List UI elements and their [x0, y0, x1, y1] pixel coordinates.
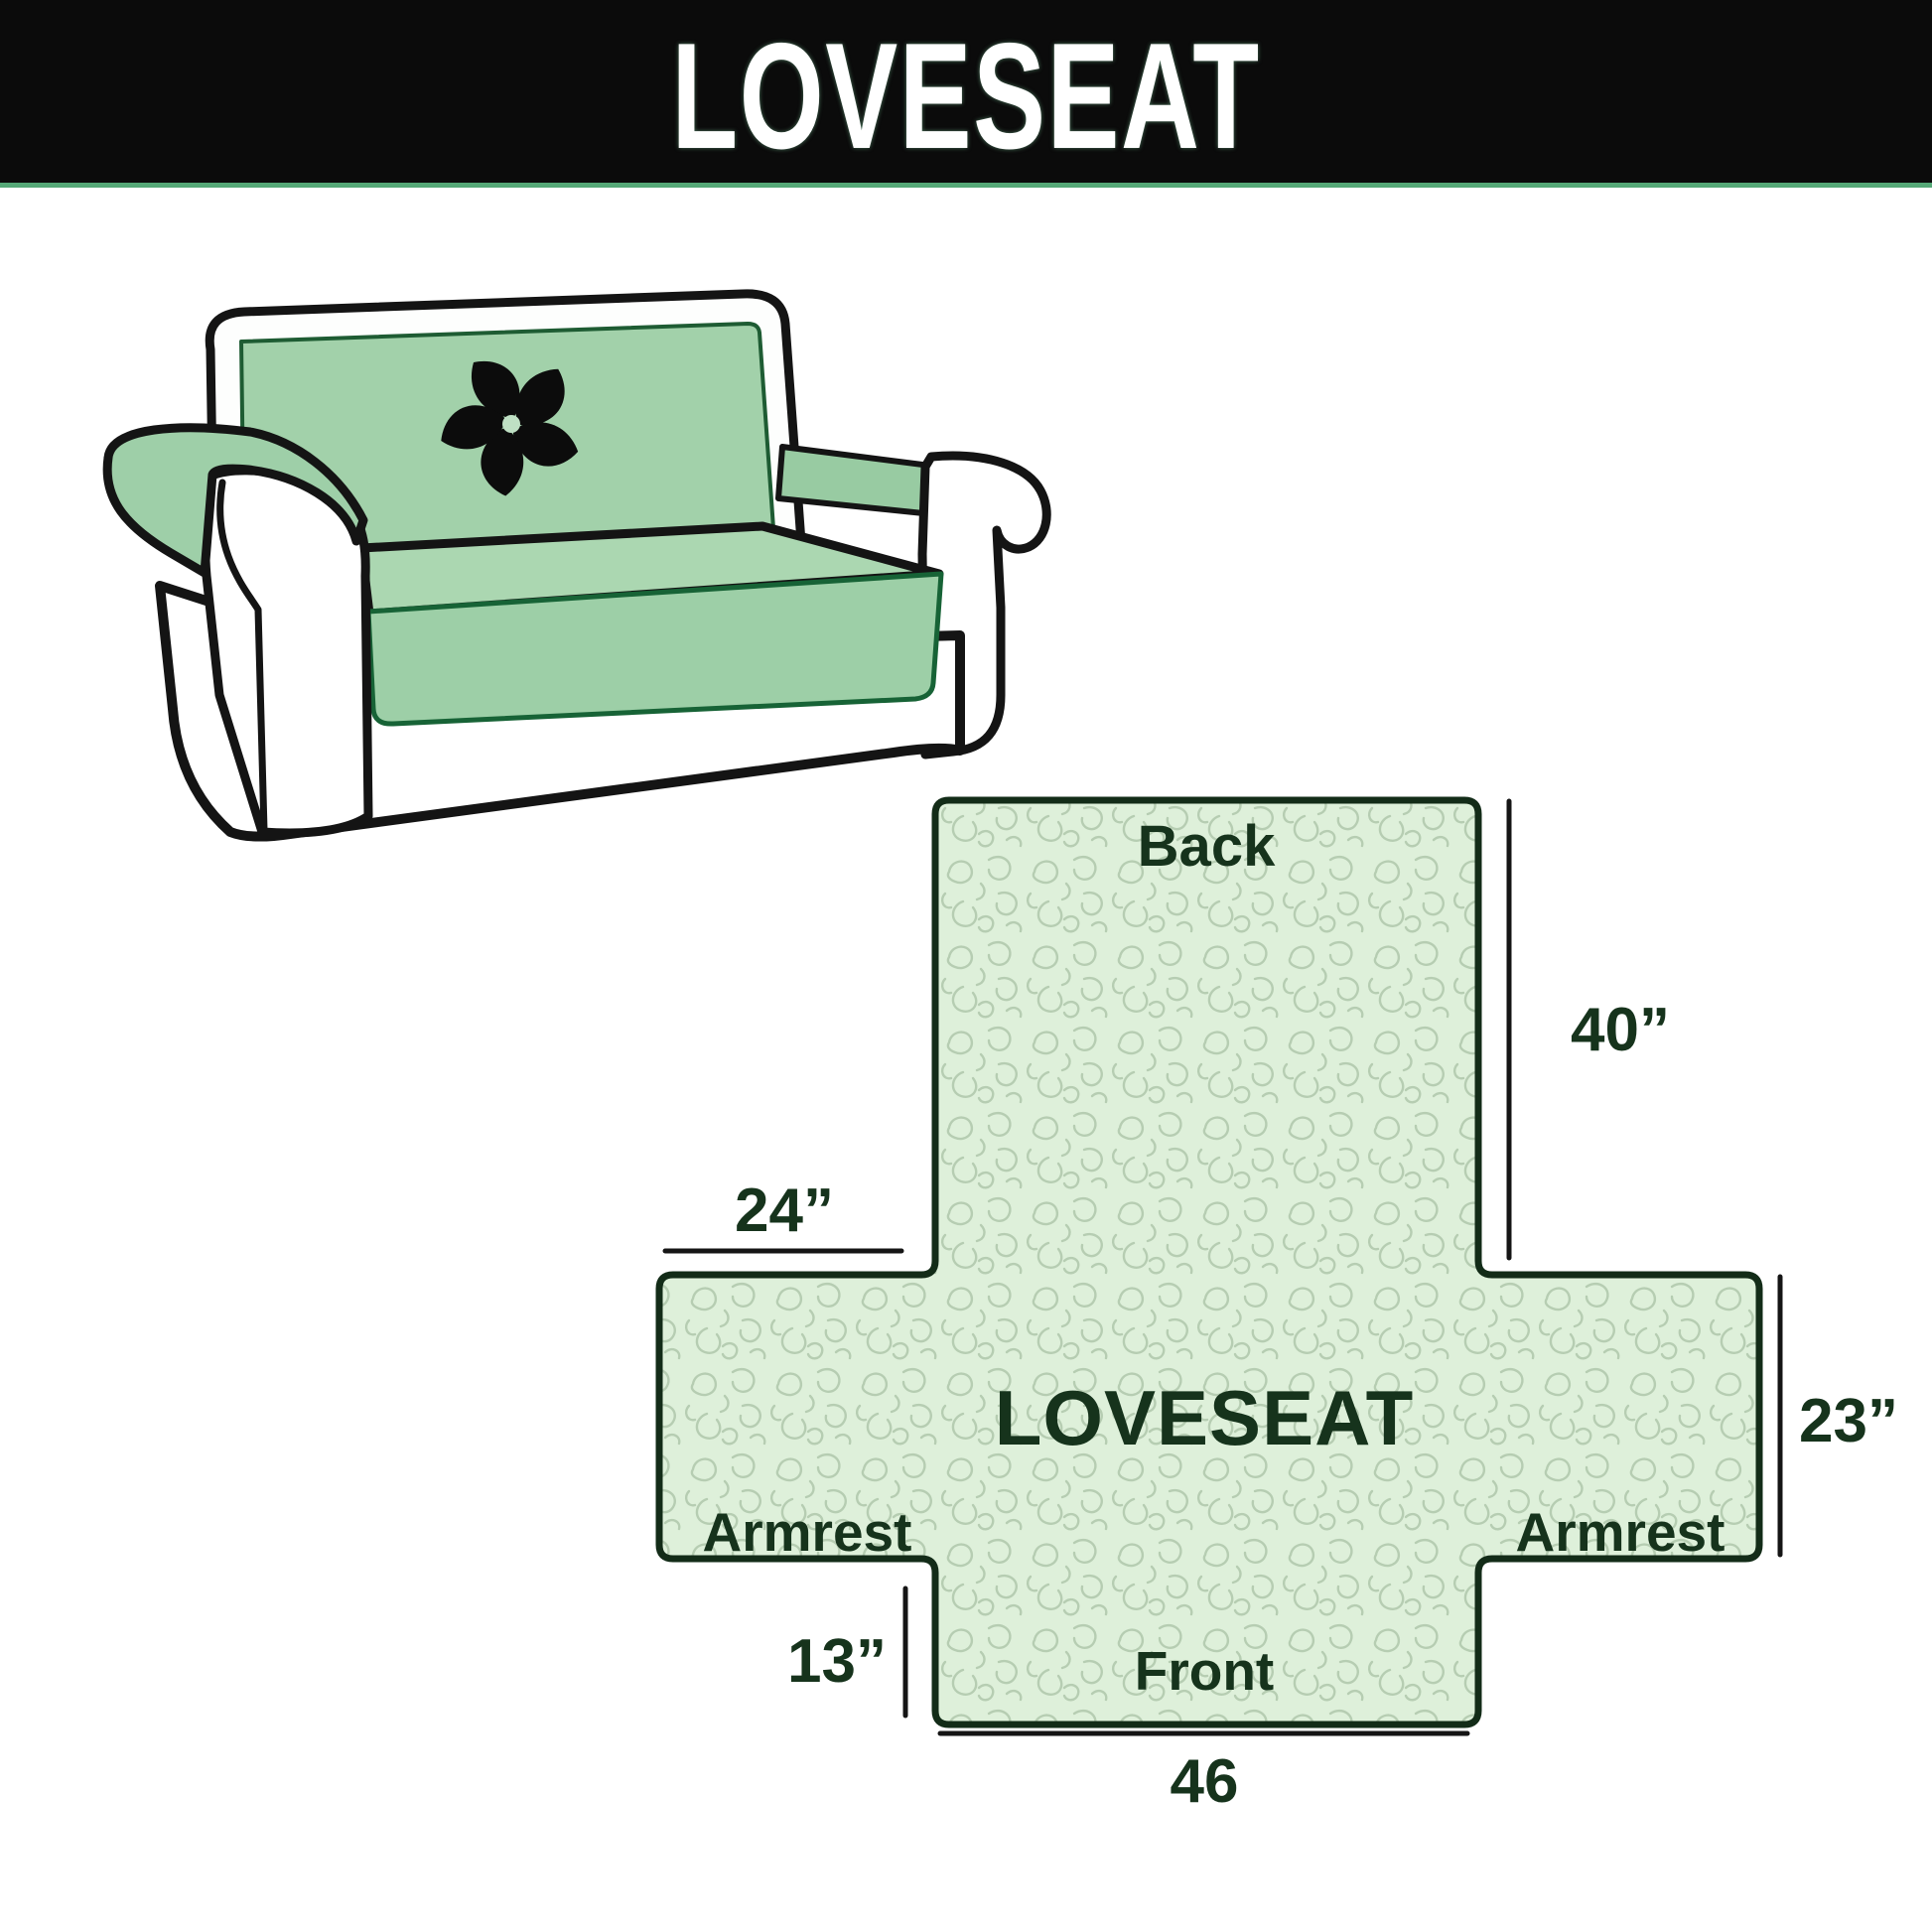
cover-diagram: Back LOVESEAT Armrest Armrest Front 40” …: [659, 800, 1898, 1816]
front-section-label: Front: [1135, 1640, 1275, 1702]
sofa-illustration: [107, 294, 1046, 837]
back-section-label: Back: [1138, 814, 1276, 879]
armrest-right-label: Armrest: [1516, 1501, 1725, 1563]
infographic-canvas: Back LOVESEAT Armrest Armrest Front 40” …: [0, 0, 1932, 1932]
dimension-front-width: 46: [1171, 1747, 1239, 1816]
dimension-armrest-side-height: 23”: [1799, 1387, 1898, 1455]
cover-diagram-shape: [659, 800, 1759, 1725]
dimension-front-drop: 13”: [787, 1627, 887, 1696]
center-loveseat-label: LOVESEAT: [995, 1374, 1415, 1461]
armrest-left-label: Armrest: [703, 1501, 912, 1563]
dimension-armrest-top-width: 24”: [735, 1176, 834, 1245]
dimension-back-height: 40”: [1571, 996, 1670, 1064]
